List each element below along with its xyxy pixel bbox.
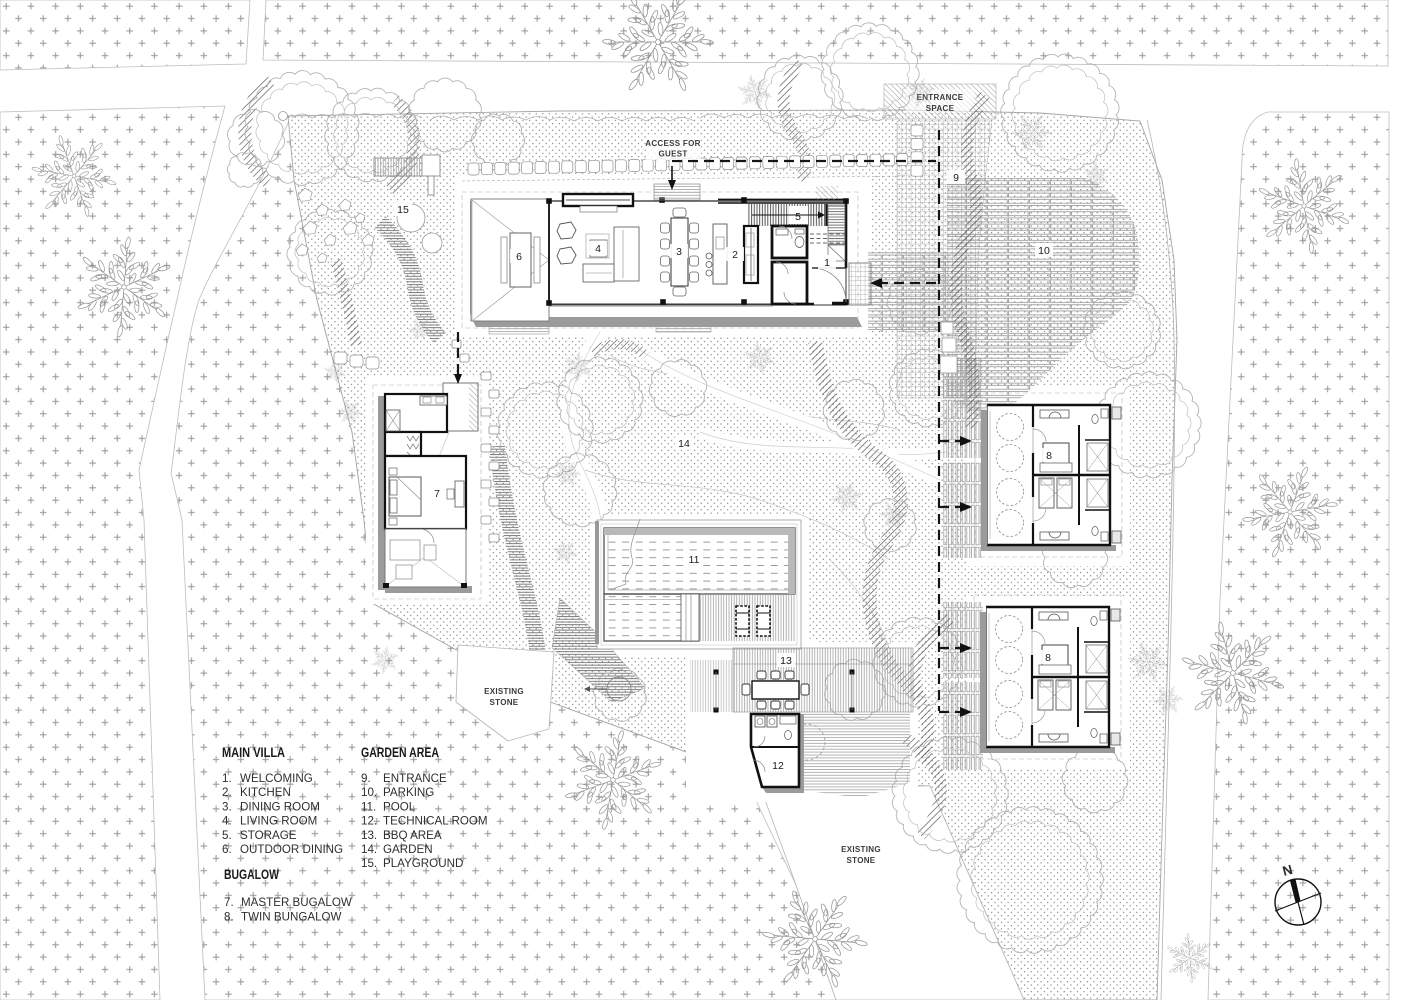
svg-text:MASTER BUGALOW: MASTER BUGALOW [241,896,352,909]
svg-text:EXISTING: EXISTING [841,845,881,854]
svg-text:8: 8 [1046,450,1052,462]
svg-text:PARKING: PARKING [383,786,434,799]
svg-text:ENTRANCE: ENTRANCE [383,772,447,785]
svg-text:ENTRANCE: ENTRANCE [917,93,964,102]
svg-text:BBQ AREA: BBQ AREA [383,829,442,842]
svg-text:TWIN BUNGALOW: TWIN BUNGALOW [241,910,342,923]
svg-text:14: 14 [678,438,690,450]
svg-text:4: 4 [595,243,601,255]
svg-text:1.: 1. [222,772,232,785]
svg-text:7.: 7. [224,896,234,909]
svg-text:5: 5 [795,211,801,223]
svg-text:9: 9 [953,172,959,184]
svg-text:9.: 9. [361,772,371,785]
svg-text:2.: 2. [222,786,232,799]
svg-text:MAIN VILLA: MAIN VILLA [222,745,285,760]
svg-text:LIVING ROOM: LIVING ROOM [240,815,317,828]
svg-text:WELCOMING: WELCOMING [240,772,313,785]
svg-text:11: 11 [689,554,700,566]
svg-text:STORAGE: STORAGE [240,829,297,842]
svg-text:POOL: POOL [383,800,416,813]
svg-text:8: 8 [1045,652,1051,664]
svg-text:STONE: STONE [490,698,519,707]
svg-text:GUEST: GUEST [658,150,687,159]
svg-text:KITCHEN: KITCHEN [240,786,291,799]
svg-text:13.: 13. [361,829,377,842]
svg-text:SPACE: SPACE [926,104,955,113]
svg-text:GARDEN AREA: GARDEN AREA [361,745,439,760]
svg-text:10: 10 [1038,245,1050,257]
svg-text:DINING ROOM: DINING ROOM [240,800,320,813]
svg-text:3.: 3. [222,800,232,813]
svg-text:12.: 12. [361,815,377,828]
svg-text:3: 3 [676,246,682,258]
svg-text:15: 15 [397,204,409,216]
svg-text:10.: 10. [361,786,377,799]
svg-text:8.: 8. [224,910,234,923]
svg-text:6.: 6. [222,843,232,856]
svg-text:GARDEN: GARDEN [383,843,433,856]
svg-text:PLAYGROUND: PLAYGROUND [383,857,463,870]
svg-text:EXISTING: EXISTING [484,687,524,696]
svg-text:STONE: STONE [847,856,876,865]
svg-text:7: 7 [434,488,440,500]
svg-text:BUGALOW: BUGALOW [224,867,279,882]
svg-text:OUTDOOR DINING: OUTDOOR DINING [240,843,343,856]
svg-text:ACCESS FOR: ACCESS FOR [645,139,700,148]
svg-text:15.: 15. [361,857,377,870]
svg-text:12: 12 [772,760,784,772]
svg-text:TECHNICAL ROOM: TECHNICAL ROOM [383,815,488,828]
svg-text:2: 2 [732,249,738,261]
svg-text:1: 1 [824,257,830,269]
svg-text:4.: 4. [222,815,232,828]
svg-text:6: 6 [516,251,522,263]
svg-text:14.: 14. [361,843,377,856]
svg-text:5.: 5. [222,829,232,842]
svg-text:11.: 11. [361,800,376,813]
svg-text:13: 13 [780,655,792,667]
